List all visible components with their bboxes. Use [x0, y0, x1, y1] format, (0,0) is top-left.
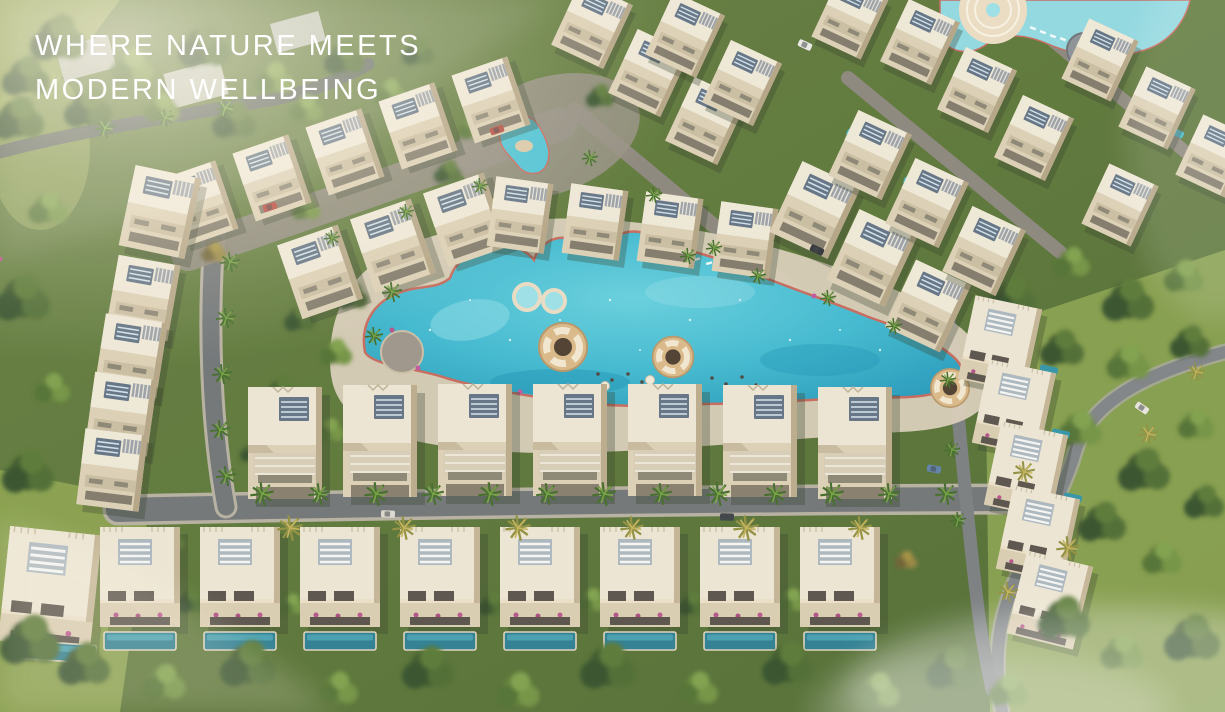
hero-tagline: WHERE NATURE MEETS MODERN WELLBEING: [35, 24, 421, 112]
tagline-line-1: WHERE NATURE MEETS: [35, 24, 421, 68]
tagline-line-2: MODERN WELLBEING: [35, 68, 421, 112]
aerial-masterplan-render: WHERE NATURE MEETS MODERN WELLBEING: [0, 0, 1225, 712]
